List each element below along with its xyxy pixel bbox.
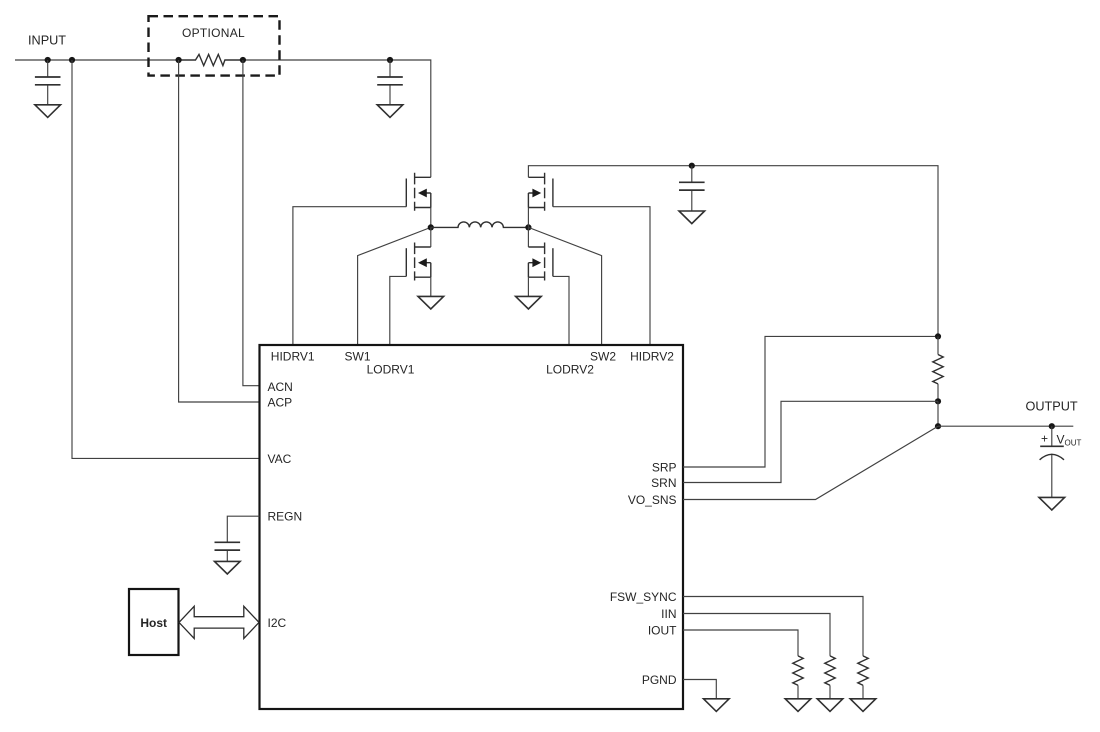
svg-text:INPUT: INPUT xyxy=(28,34,66,48)
svg-text:IIN: IIN xyxy=(661,607,676,621)
svg-text:OUT: OUT xyxy=(1065,439,1082,448)
svg-text:VAC: VAC xyxy=(268,452,292,466)
svg-text:Host: Host xyxy=(140,616,167,630)
svg-text:PGND: PGND xyxy=(642,673,677,687)
svg-text:V: V xyxy=(1057,433,1065,447)
svg-text:LODRV2: LODRV2 xyxy=(546,363,594,377)
svg-text:REGN: REGN xyxy=(268,510,303,524)
svg-text:VO_SNS: VO_SNS xyxy=(628,493,677,507)
svg-text:SW2: SW2 xyxy=(590,349,616,363)
svg-text:SW1: SW1 xyxy=(344,349,370,363)
svg-text:HIDRV2: HIDRV2 xyxy=(630,349,674,363)
svg-text:OPTIONAL: OPTIONAL xyxy=(182,26,245,40)
svg-text:+: + xyxy=(1041,432,1048,446)
svg-text:LODRV1: LODRV1 xyxy=(367,363,415,377)
svg-text:IOUT: IOUT xyxy=(648,623,677,637)
svg-text:HIDRV1: HIDRV1 xyxy=(271,349,315,363)
svg-text:I2C: I2C xyxy=(268,616,287,630)
svg-text:OUTPUT: OUTPUT xyxy=(1026,400,1078,414)
svg-text:SRN: SRN xyxy=(651,476,676,490)
svg-text:ACP: ACP xyxy=(268,395,293,409)
svg-text:SRP: SRP xyxy=(652,460,677,474)
svg-text:FSW_SYNC: FSW_SYNC xyxy=(610,590,677,604)
svg-text:ACN: ACN xyxy=(268,380,293,394)
